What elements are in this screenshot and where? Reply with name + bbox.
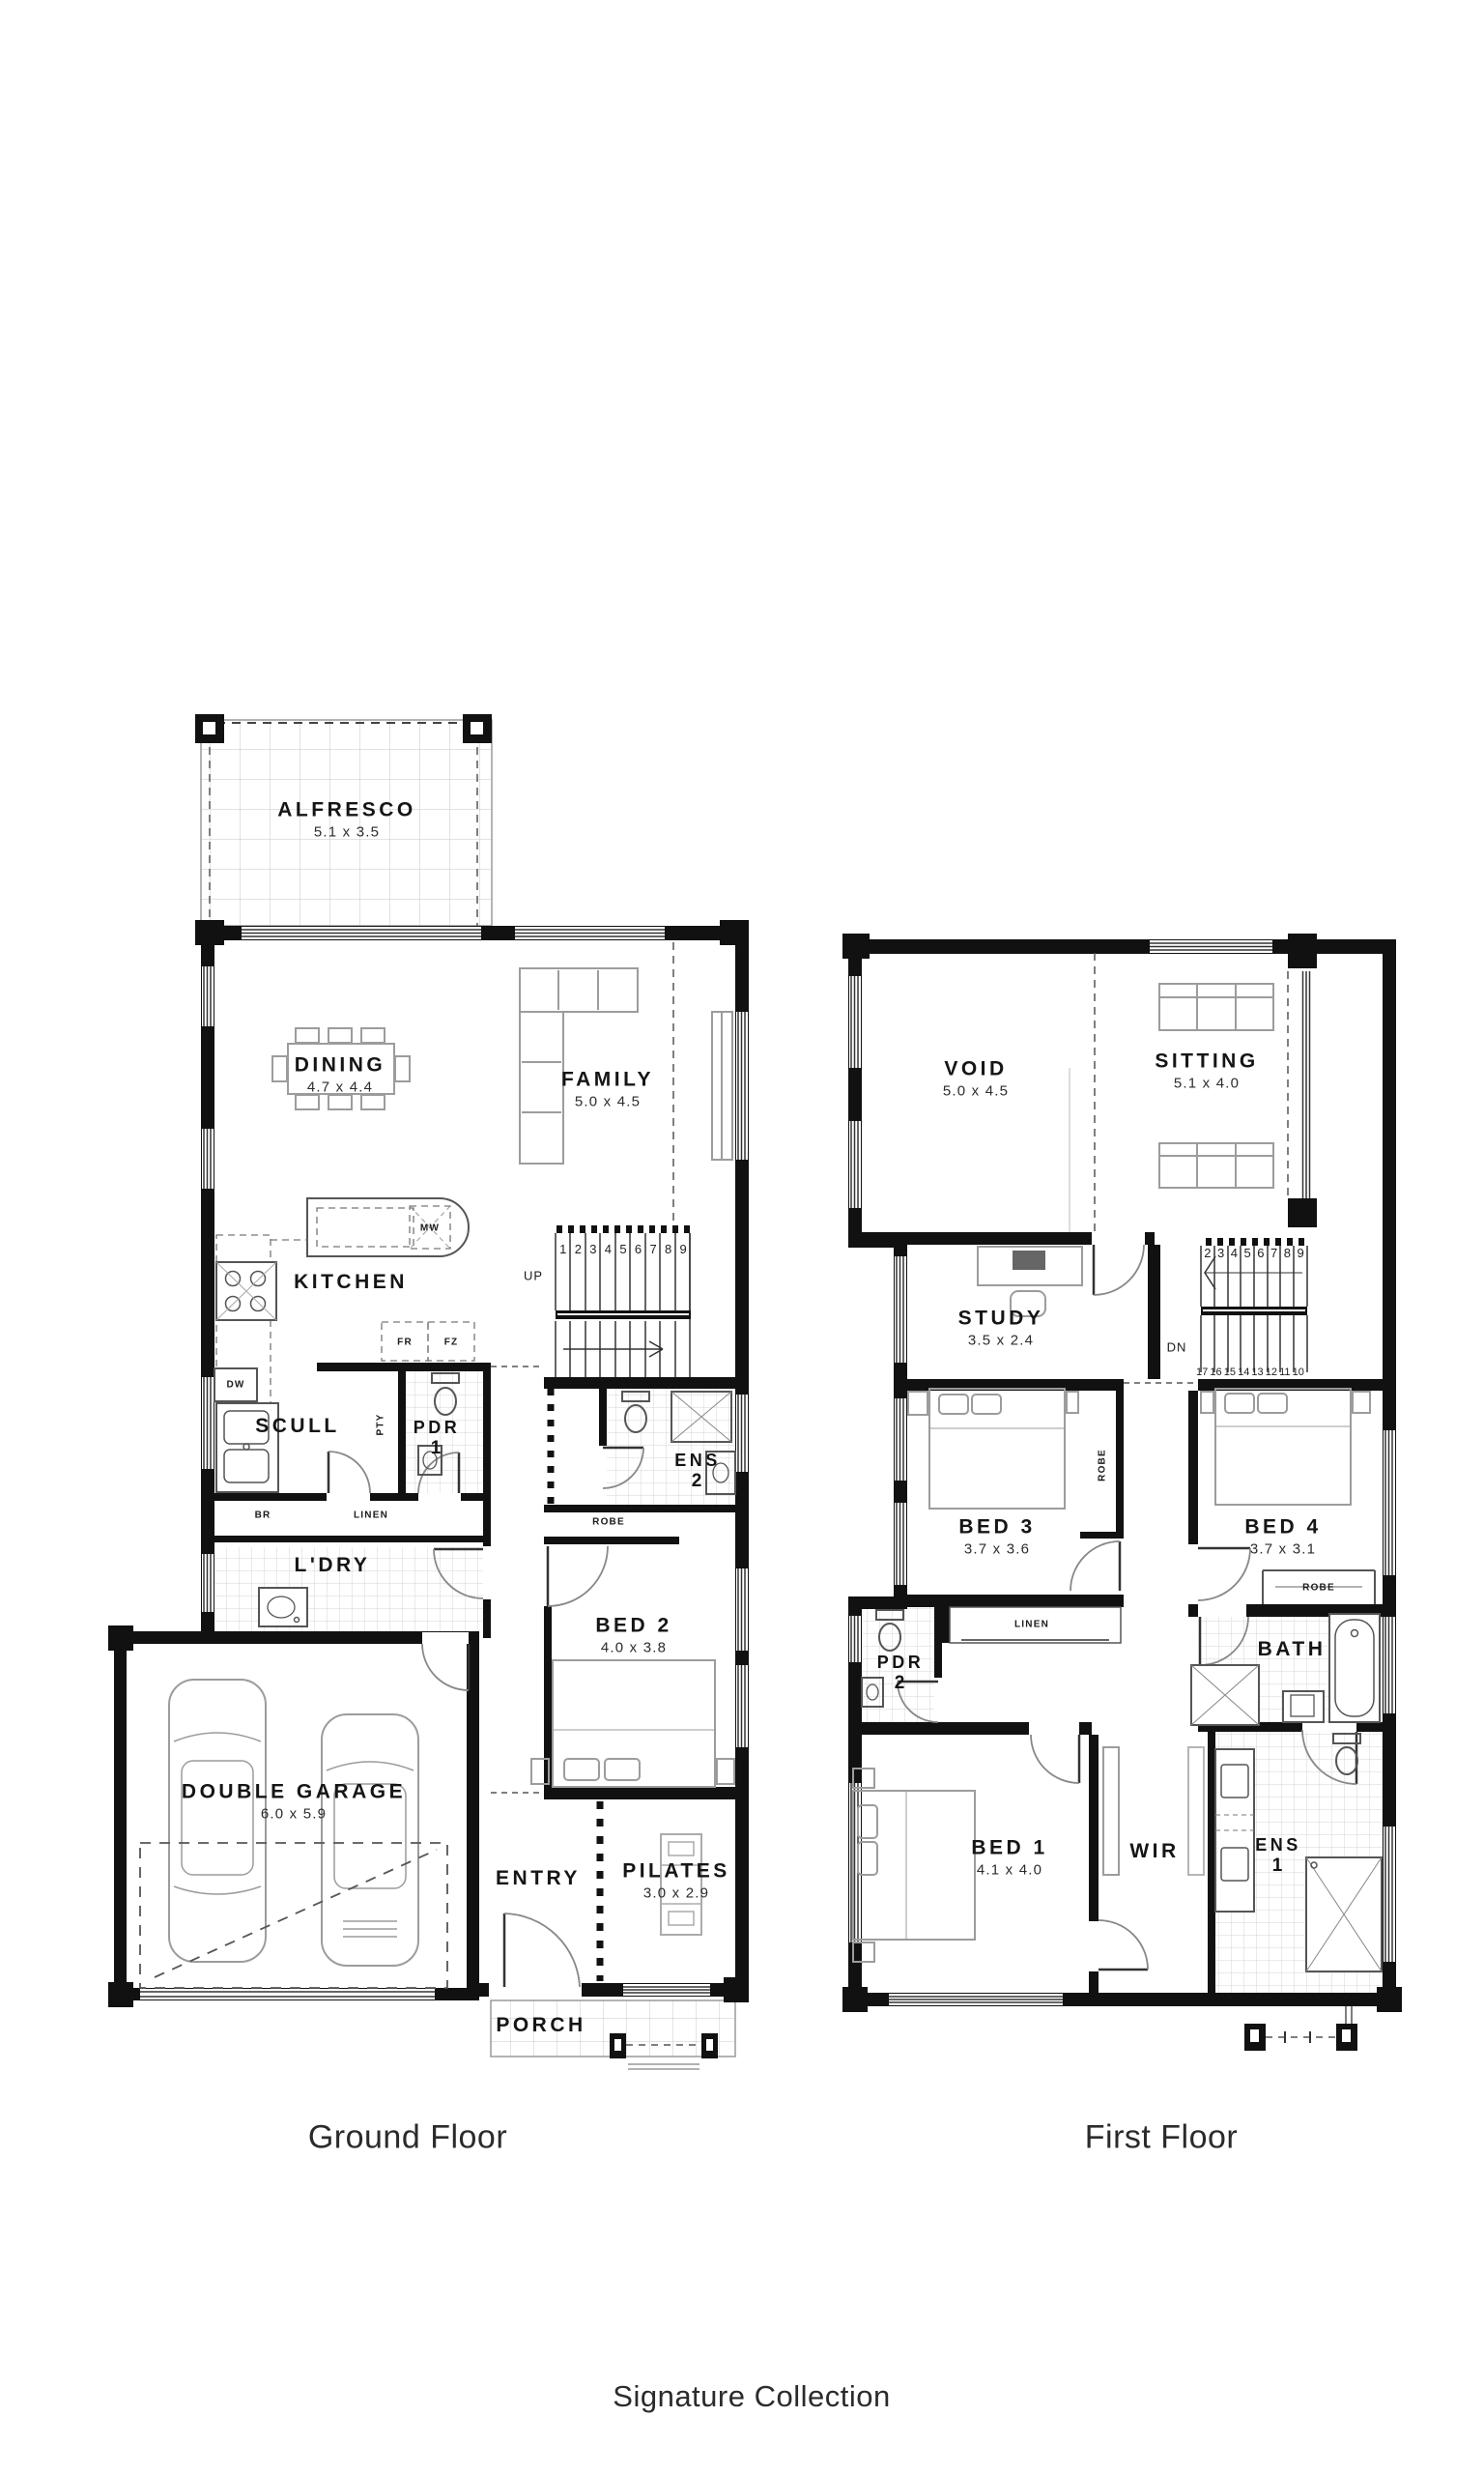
stair-number: 9 — [680, 1242, 687, 1256]
room-label-dining: DINING4.7 x 4.4 — [295, 1053, 386, 1095]
fixture-label-robe-ground: ROBE — [592, 1517, 625, 1528]
floorplan-linework — [0, 0, 1484, 2474]
stair-number: 6 — [635, 1242, 642, 1256]
stair-number: 16 — [1210, 1366, 1221, 1378]
stair-number: 17 — [1196, 1366, 1208, 1378]
room-label-porch: PORCH — [496, 2014, 585, 2037]
stair-number: 4 — [1231, 1246, 1238, 1260]
stair-number: 1 — [559, 1242, 566, 1256]
fixture-label-linen-ground: LINEN — [354, 1510, 388, 1521]
stair-number: 8 — [665, 1242, 671, 1256]
stair-number: 7 — [649, 1242, 656, 1256]
stair-number: 5 — [619, 1242, 626, 1256]
room-label-bed1: BED 14.1 x 4.0 — [971, 1836, 1047, 1878]
room-label-ldry: L'DRY — [295, 1554, 371, 1577]
fixture-label-robe-bed3: ROBE — [1098, 1449, 1108, 1482]
stair-number: 5 — [1244, 1246, 1251, 1260]
collection-title: Signature Collection — [613, 2379, 890, 2414]
room-label-pdr2: PDR2 — [877, 1653, 925, 1693]
stair-number: 2 — [575, 1242, 582, 1256]
room-label-kitchen: KITCHEN — [294, 1271, 408, 1294]
room-label-family: FAMILY5.0 x 4.5 — [561, 1068, 654, 1109]
room-label-bed3: BED 33.7 x 3.6 — [958, 1515, 1035, 1557]
fixture-label-pantry: PTY — [376, 1413, 386, 1435]
room-label-entry: ENTRY — [496, 1867, 581, 1890]
stair-number: 3 — [1217, 1246, 1224, 1260]
fixture-label-robe-bed4: ROBE — [1302, 1583, 1335, 1594]
stair-number: 11 — [1279, 1366, 1290, 1378]
room-label-void: VOID5.0 x 4.5 — [943, 1057, 1009, 1099]
stair-up-label: UP — [524, 1269, 543, 1283]
fixture-label-linen-first: LINEN — [1014, 1620, 1049, 1630]
fixture-label-dishwasher: DW — [226, 1380, 244, 1391]
room-label-bath: BATH — [1258, 1638, 1327, 1661]
stair-down-label: DN — [1167, 1340, 1187, 1355]
stair-number: 7 — [1270, 1246, 1277, 1260]
stair-number: 15 — [1224, 1366, 1236, 1378]
stair-number: 4 — [605, 1242, 612, 1256]
room-label-ens1: ENS1 — [1255, 1835, 1301, 1876]
room-label-pdr1: PDR1 — [414, 1418, 461, 1458]
ground-floor-caption: Ground Floor — [308, 2119, 507, 2157]
room-label-bed4: BED 43.7 x 3.1 — [1244, 1515, 1321, 1557]
stair-number: 2 — [1204, 1246, 1211, 1260]
room-label-alfresco: ALFRESCO5.1 x 3.5 — [277, 798, 416, 840]
stair-number: 3 — [589, 1242, 596, 1256]
room-label-garage: DOUBLE GARAGE6.0 x 5.9 — [182, 1780, 406, 1822]
floorplan-page: ALFRESCO5.1 x 3.5 DINING4.7 x 4.4 FAMILY… — [0, 0, 1484, 2474]
stair-number: 14 — [1238, 1366, 1249, 1378]
room-label-pilates: PILATES3.0 x 2.9 — [622, 1859, 730, 1901]
stair-number: 8 — [1284, 1246, 1291, 1260]
stair-number: 12 — [1266, 1366, 1277, 1378]
ground-stair-numbers: 123456789 — [556, 1241, 691, 1256]
room-label-ens2: ENS2 — [674, 1451, 721, 1491]
fixture-label-microwave: MW — [420, 1223, 440, 1234]
stair-number: 13 — [1251, 1366, 1263, 1378]
fixture-label-fridge: FR — [397, 1338, 413, 1348]
first-floor-caption: First Floor — [1085, 2119, 1239, 2157]
first-floor-plan — [842, 934, 1402, 2051]
room-label-study: STUDY3.5 x 2.4 — [958, 1307, 1044, 1348]
first-stairs — [1070, 953, 1307, 1383]
stair-number: 9 — [1298, 1246, 1304, 1260]
room-label-scull: SCULL — [255, 1415, 340, 1438]
fixture-label-broom: BR — [255, 1510, 271, 1521]
stair-number: 10 — [1293, 1366, 1304, 1378]
first-roof-posts — [1244, 2006, 1357, 2051]
stair-number: 6 — [1257, 1246, 1264, 1260]
room-label-wir: WIR — [1129, 1840, 1179, 1863]
room-label-bed2: BED 24.0 x 3.8 — [595, 1614, 671, 1655]
fixture-label-freezer: FZ — [444, 1338, 459, 1348]
room-label-sitting: SITTING5.1 x 4.0 — [1155, 1050, 1258, 1091]
first-stair-numbers-lower: 1716151413121110 — [1195, 1365, 1305, 1379]
first-stair-numbers-upper: 23456789 — [1201, 1245, 1307, 1260]
